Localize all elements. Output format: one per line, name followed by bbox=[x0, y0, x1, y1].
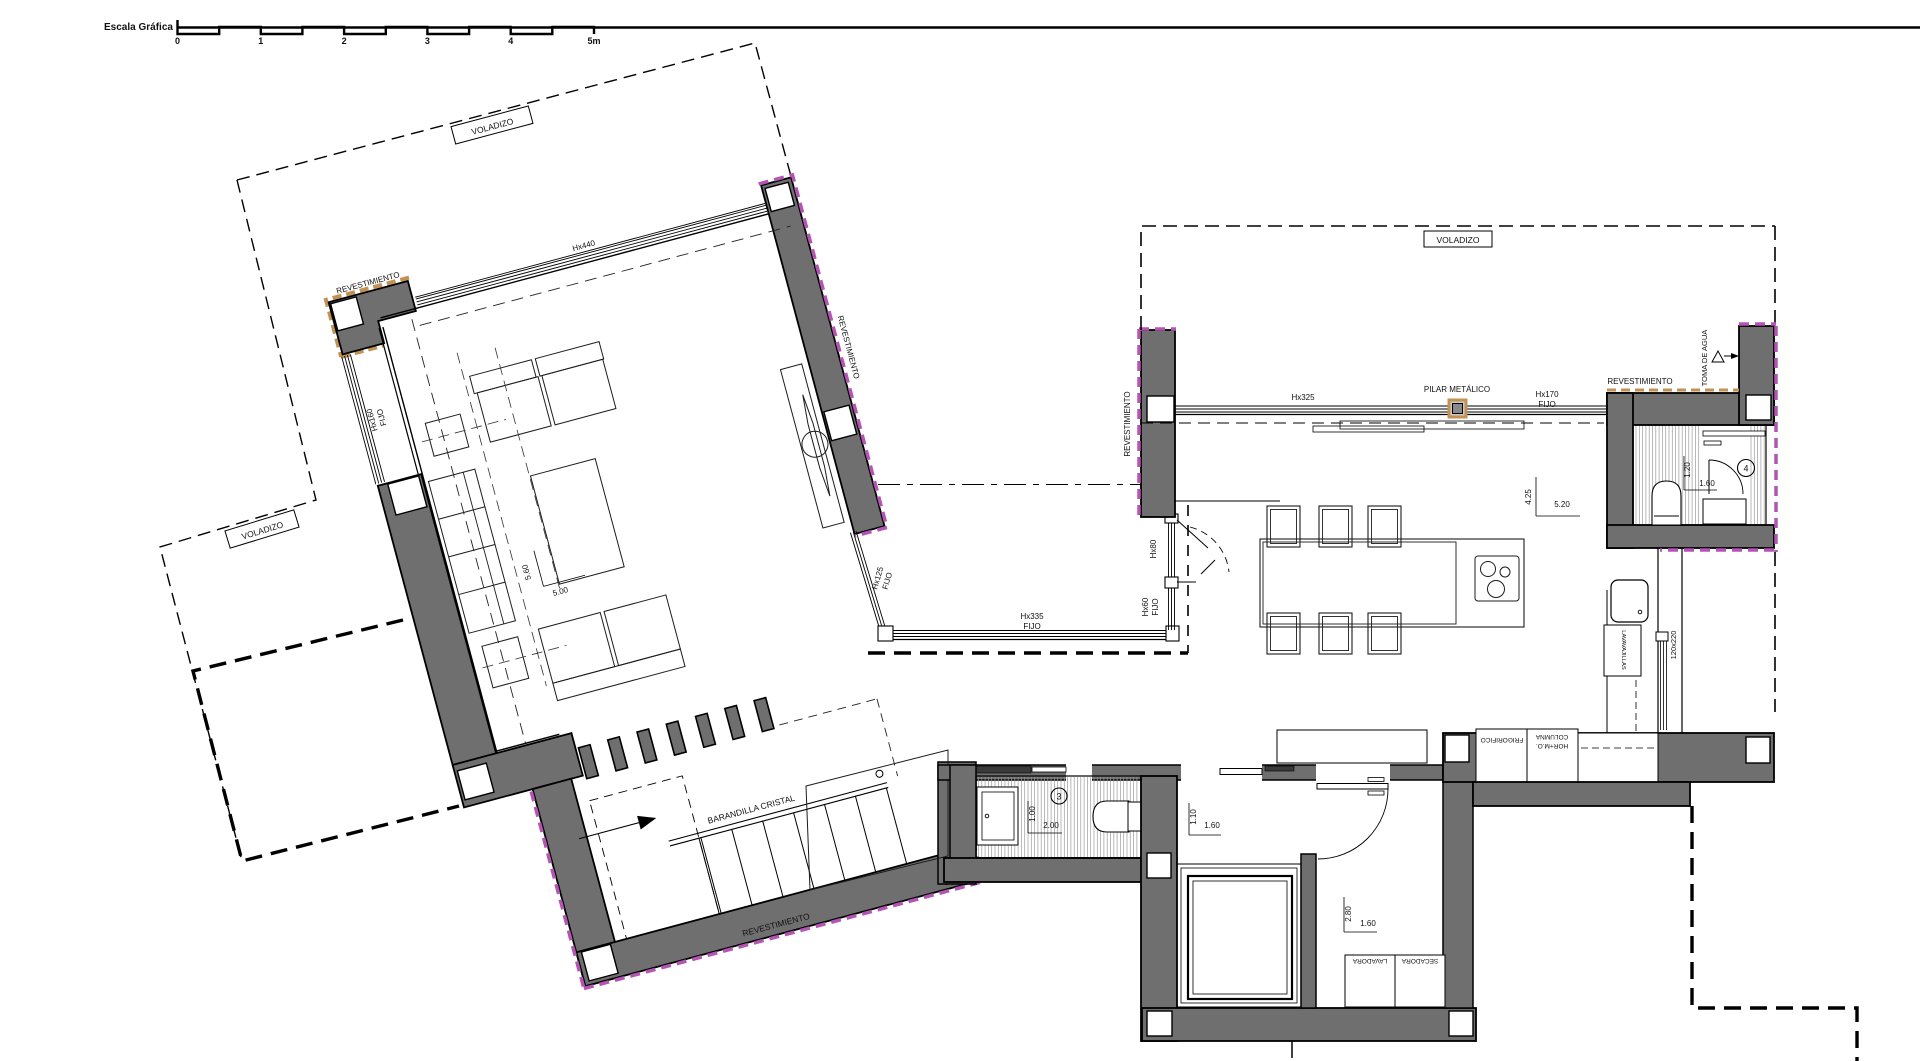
svg-text:3: 3 bbox=[1056, 792, 1061, 802]
svg-text:4.25: 4.25 bbox=[1524, 489, 1533, 505]
svg-text:FIJO: FIJO bbox=[1023, 622, 1040, 631]
svg-text:Hx335: Hx335 bbox=[1020, 612, 1044, 621]
svg-text:SECADORA: SECADORA bbox=[1401, 957, 1438, 964]
svg-text:Hx170: Hx170 bbox=[1535, 390, 1559, 399]
svg-text:5m: 5m bbox=[587, 36, 600, 46]
svg-text:HOR+M.O.: HOR+M.O. bbox=[1536, 742, 1569, 749]
svg-text:1.20: 1.20 bbox=[1683, 462, 1692, 478]
svg-text:COLUMNA: COLUMNA bbox=[1535, 733, 1568, 740]
svg-text:5.20: 5.20 bbox=[1554, 500, 1570, 509]
svg-text:REVESTIMIENTO: REVESTIMIENTO bbox=[1123, 391, 1132, 456]
svg-text:1.10: 1.10 bbox=[1189, 809, 1198, 825]
svg-text:REVESTIMIENTO: REVESTIMIENTO bbox=[1607, 377, 1672, 386]
svg-text:1.00: 1.00 bbox=[1028, 806, 1037, 822]
svg-text:FIJO: FIJO bbox=[1538, 400, 1555, 409]
svg-text:Hx60: Hx60 bbox=[1141, 597, 1150, 616]
svg-text:LAVADORA: LAVADORA bbox=[1352, 957, 1387, 964]
svg-text:Hx80: Hx80 bbox=[1149, 539, 1158, 558]
svg-text:3: 3 bbox=[425, 36, 430, 46]
svg-text:1: 1 bbox=[258, 36, 263, 46]
svg-text:2: 2 bbox=[342, 36, 347, 46]
svg-text:Hx325: Hx325 bbox=[1291, 393, 1315, 402]
svg-text:4: 4 bbox=[1743, 464, 1748, 474]
svg-text:FRIGORIFICO: FRIGORIFICO bbox=[1481, 736, 1524, 743]
svg-text:1.60: 1.60 bbox=[1204, 821, 1220, 830]
svg-text:FIJO: FIJO bbox=[1151, 598, 1160, 615]
svg-text:2.00: 2.00 bbox=[1043, 821, 1059, 830]
svg-text:1.60: 1.60 bbox=[1699, 479, 1715, 488]
svg-text:2.80: 2.80 bbox=[1344, 906, 1353, 922]
svg-text:4: 4 bbox=[508, 36, 513, 46]
svg-text:0: 0 bbox=[175, 36, 180, 46]
svg-text:LAVAVAJILLAS: LAVAVAJILLAS bbox=[1620, 630, 1626, 670]
svg-text:PILAR METÁLICO: PILAR METÁLICO bbox=[1424, 385, 1490, 394]
svg-text:120x220: 120x220 bbox=[1669, 631, 1678, 660]
svg-text:VOLADIZO: VOLADIZO bbox=[1437, 235, 1480, 245]
svg-text:1.60: 1.60 bbox=[1360, 919, 1376, 928]
svg-text:Escala Gráfica: Escala Gráfica bbox=[104, 22, 173, 33]
svg-text:TOMA DE AGUA: TOMA DE AGUA bbox=[1700, 330, 1709, 387]
